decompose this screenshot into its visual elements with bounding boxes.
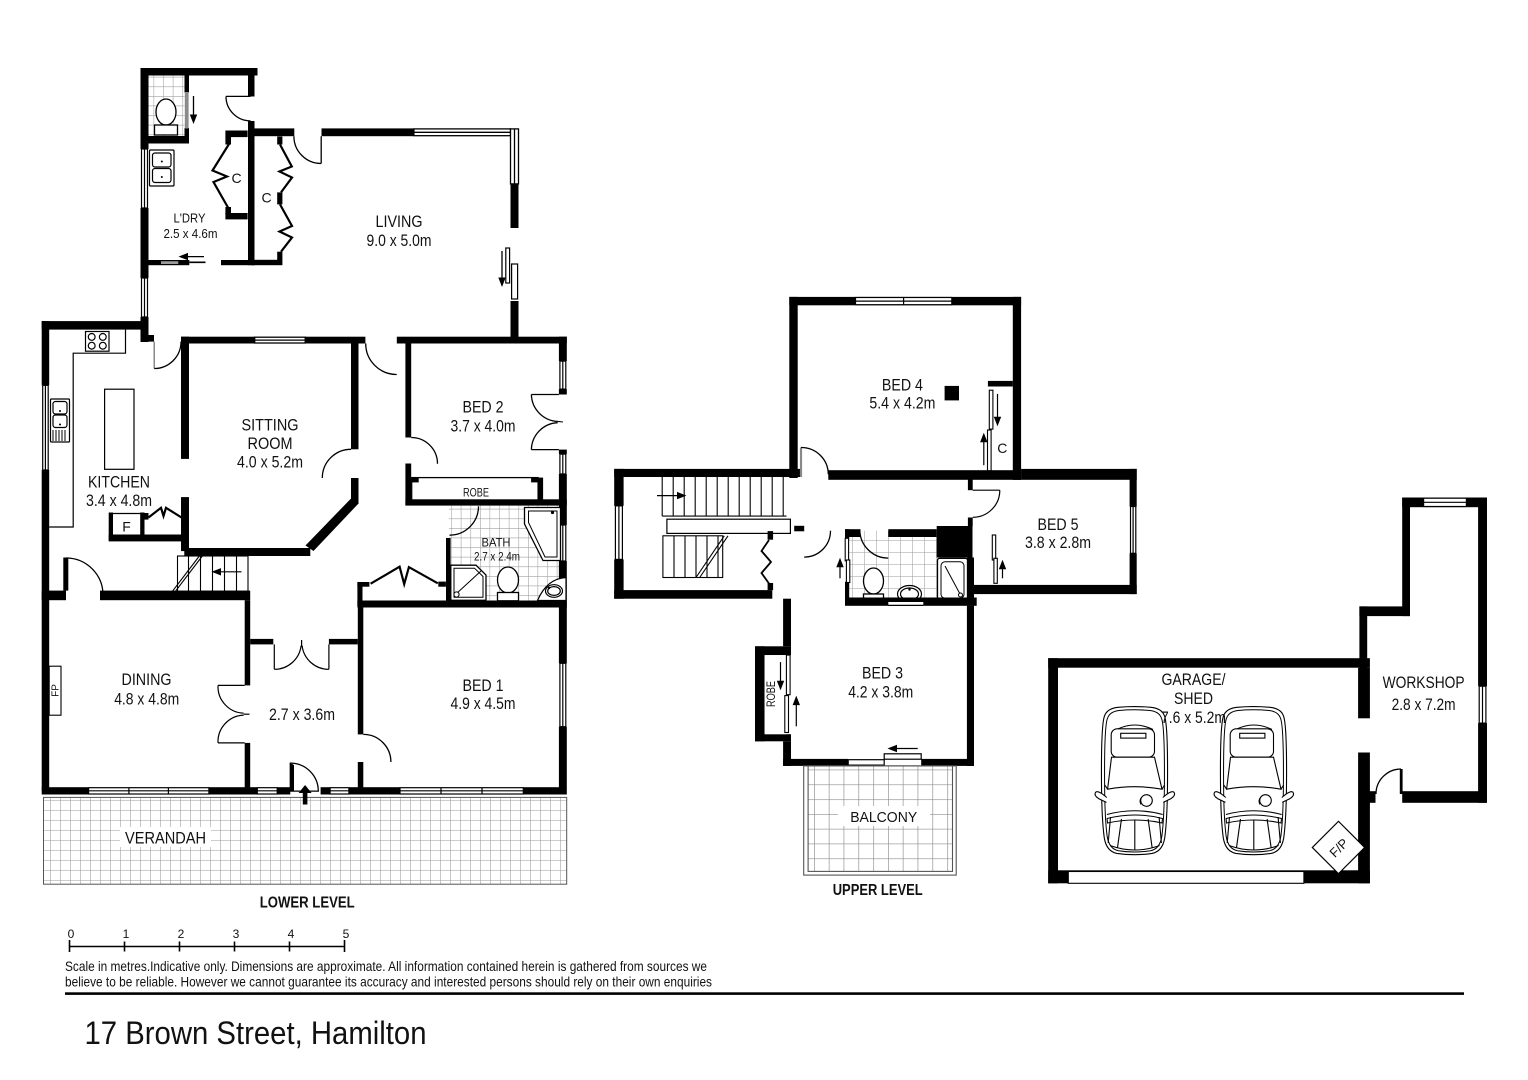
svg-text:ROOM: ROOM <box>248 435 293 453</box>
svg-text:3.7 x 4.0m: 3.7 x 4.0m <box>451 418 516 436</box>
svg-text:BED 2: BED 2 <box>463 399 504 417</box>
svg-text:ROBE: ROBE <box>463 486 489 500</box>
svg-text:C: C <box>997 440 1007 456</box>
svg-text:UPPER LEVEL: UPPER LEVEL <box>833 882 923 899</box>
svg-text:5: 5 <box>343 927 350 941</box>
svg-text:BED 3: BED 3 <box>862 665 903 683</box>
svg-text:FP: FP <box>51 684 62 697</box>
svg-text:4.8 x 4.8m: 4.8 x 4.8m <box>114 691 179 709</box>
svg-text:C: C <box>231 170 241 186</box>
svg-text:BALCONY: BALCONY <box>850 809 917 826</box>
svg-text:17 Brown Street, Hamilton: 17 Brown Street, Hamilton <box>85 1015 427 1051</box>
svg-text:C: C <box>261 190 271 206</box>
svg-text:5.4 x 4.2m: 5.4 x 4.2m <box>869 395 935 413</box>
svg-text:GARAGE/: GARAGE/ <box>1162 671 1226 689</box>
svg-text:2: 2 <box>178 927 185 941</box>
svg-text:0: 0 <box>68 927 75 941</box>
svg-text:DINING: DINING <box>122 671 172 689</box>
svg-text:BED 1: BED 1 <box>463 677 504 695</box>
svg-text:4.9 x 4.5m: 4.9 x 4.5m <box>451 695 516 713</box>
svg-text:WORKSHOP: WORKSHOP <box>1383 674 1465 692</box>
svg-text:SITTING: SITTING <box>242 417 299 435</box>
svg-text:1: 1 <box>123 927 130 941</box>
svg-text:BED 4: BED 4 <box>882 377 923 395</box>
svg-text:BATH: BATH <box>482 536 511 550</box>
svg-text:2.7 x 2.4m: 2.7 x 2.4m <box>474 550 520 564</box>
svg-text:2.5 x 4.6m: 2.5 x 4.6m <box>164 227 218 241</box>
svg-text:7.6 x 5.2m: 7.6 x 5.2m <box>1161 709 1226 727</box>
svg-text:BED 5: BED 5 <box>1038 516 1079 534</box>
svg-text:9.0 x 5.0m: 9.0 x 5.0m <box>367 232 432 250</box>
svg-text:believe to be reliable. Howeve: believe to be reliable. However we canno… <box>65 975 712 990</box>
svg-text:L'DRY: L'DRY <box>174 212 207 226</box>
svg-text:4.2 x 3.8m: 4.2 x 3.8m <box>848 684 913 702</box>
svg-text:Scale in metres.Indicative onl: Scale in metres.Indicative only. Dimensi… <box>65 959 707 974</box>
svg-text:4.0 x 5.2m: 4.0 x 5.2m <box>237 454 303 472</box>
svg-text:3.8 x 2.8m: 3.8 x 2.8m <box>1025 534 1091 552</box>
svg-text:ROBE: ROBE <box>764 681 778 707</box>
svg-text:SHED: SHED <box>1174 690 1213 708</box>
svg-text:VERANDAH: VERANDAH <box>125 830 206 848</box>
svg-text:LIVING: LIVING <box>376 213 423 231</box>
svg-text:2.7 x 3.6m: 2.7 x 3.6m <box>269 706 335 724</box>
svg-text:KITCHEN: KITCHEN <box>88 474 150 492</box>
svg-text:3: 3 <box>233 927 240 941</box>
svg-text:4: 4 <box>288 927 295 941</box>
svg-text:3.4 x 4.8m: 3.4 x 4.8m <box>86 492 152 510</box>
svg-text:LOWER LEVEL: LOWER LEVEL <box>260 895 355 912</box>
svg-text:2.8 x 7.2m: 2.8 x 7.2m <box>1392 696 1456 714</box>
svg-text:F: F <box>122 519 131 535</box>
